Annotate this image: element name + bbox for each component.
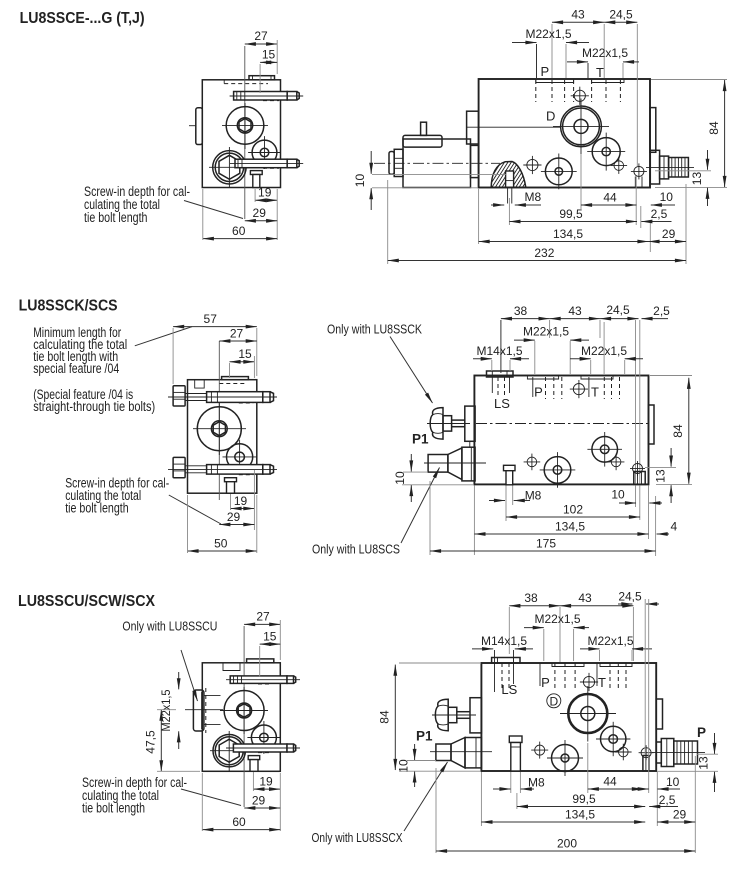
svg-text:Only with LU8SSCU: Only with LU8SSCU xyxy=(122,619,217,634)
svg-text:M22x1,5: M22x1,5 xyxy=(534,612,580,626)
svg-text:15: 15 xyxy=(238,347,252,361)
svg-text:Only with LU8SSCK: Only with LU8SSCK xyxy=(327,322,422,337)
svg-text:M22x1,5: M22x1,5 xyxy=(582,46,628,60)
svg-text:tie bolt length: tie bolt length xyxy=(82,801,145,816)
svg-text:M22x1,5: M22x1,5 xyxy=(587,634,633,648)
svg-text:10: 10 xyxy=(660,190,674,204)
svg-text:29: 29 xyxy=(662,227,676,241)
svg-text:27: 27 xyxy=(254,29,268,43)
svg-text:T: T xyxy=(598,675,606,690)
svg-text:29: 29 xyxy=(227,510,241,524)
svg-text:44: 44 xyxy=(603,191,617,205)
svg-text:50: 50 xyxy=(214,536,228,550)
svg-text:19: 19 xyxy=(259,774,273,788)
svg-text:57: 57 xyxy=(204,312,218,326)
svg-text:15: 15 xyxy=(263,629,277,643)
svg-text:13: 13 xyxy=(690,172,704,186)
svg-text:43: 43 xyxy=(578,591,592,605)
svg-text:99,5: 99,5 xyxy=(559,207,583,221)
svg-text:13: 13 xyxy=(697,756,711,770)
svg-text:2,5: 2,5 xyxy=(659,793,676,807)
svg-text:134,5: 134,5 xyxy=(565,807,595,821)
svg-text:47,5: 47,5 xyxy=(144,730,158,754)
svg-text:T: T xyxy=(596,65,604,80)
svg-text:P: P xyxy=(541,675,550,690)
svg-text:24,5: 24,5 xyxy=(606,303,630,317)
svg-text:LS: LS xyxy=(501,682,517,697)
svg-text:P: P xyxy=(541,64,550,79)
svg-text:60: 60 xyxy=(232,224,246,238)
svg-text:straight-through tie bolts): straight-through tie bolts) xyxy=(33,399,155,414)
svg-text:M14x1,5: M14x1,5 xyxy=(481,634,527,648)
svg-text:15: 15 xyxy=(262,48,276,62)
svg-text:P1: P1 xyxy=(416,729,433,744)
svg-text:43: 43 xyxy=(571,8,585,22)
svg-text:19: 19 xyxy=(258,186,272,200)
svg-text:84: 84 xyxy=(378,710,392,724)
svg-text:84: 84 xyxy=(707,121,721,135)
svg-text:175: 175 xyxy=(536,536,556,550)
svg-text:24,5: 24,5 xyxy=(618,589,642,603)
svg-text:19: 19 xyxy=(234,494,248,508)
svg-text:M8: M8 xyxy=(528,776,545,790)
svg-text:29: 29 xyxy=(252,793,266,807)
svg-text:102: 102 xyxy=(563,502,583,516)
svg-text:M22x1,5: M22x1,5 xyxy=(523,324,569,338)
svg-text:P1: P1 xyxy=(412,432,429,447)
svg-text:Only with LU8SSCX: Only with LU8SSCX xyxy=(312,830,403,845)
svg-text:M8: M8 xyxy=(525,489,542,503)
svg-text:60: 60 xyxy=(232,815,246,829)
svg-text:LU8SSCE-...G (T,J): LU8SSCE-...G (T,J) xyxy=(20,10,145,27)
svg-text:44: 44 xyxy=(603,774,617,788)
svg-text:43: 43 xyxy=(568,304,582,318)
svg-text:2,5: 2,5 xyxy=(653,304,670,318)
svg-text:29: 29 xyxy=(673,807,687,821)
svg-text:M22x1,5: M22x1,5 xyxy=(581,344,627,358)
svg-text:special feature /04: special feature /04 xyxy=(33,361,119,376)
svg-text:P: P xyxy=(534,385,543,400)
svg-text:tie bolt length: tie bolt length xyxy=(65,501,129,516)
svg-text:2,5: 2,5 xyxy=(651,207,668,221)
svg-text:38: 38 xyxy=(524,591,538,605)
svg-text:4: 4 xyxy=(671,519,678,533)
svg-text:10: 10 xyxy=(611,488,625,502)
svg-text:29: 29 xyxy=(253,206,267,220)
svg-text:84: 84 xyxy=(671,424,685,438)
svg-text:134,5: 134,5 xyxy=(553,227,583,241)
svg-text:134,5: 134,5 xyxy=(555,519,585,533)
svg-text:D: D xyxy=(546,109,555,124)
svg-text:M8: M8 xyxy=(525,190,542,204)
svg-text:M22x1,5: M22x1,5 xyxy=(525,27,571,41)
svg-text:LU8SSCU/SCW/SCX: LU8SSCU/SCW/SCX xyxy=(18,593,155,610)
svg-text:13: 13 xyxy=(654,469,668,483)
svg-text:232: 232 xyxy=(534,246,554,260)
svg-text:99,5: 99,5 xyxy=(572,792,596,806)
svg-text:10: 10 xyxy=(393,471,407,485)
svg-text:10: 10 xyxy=(353,174,367,188)
svg-text:LS: LS xyxy=(494,396,510,411)
svg-text:38: 38 xyxy=(514,304,528,318)
svg-text:LU8SSCK/SCS: LU8SSCK/SCS xyxy=(19,298,118,315)
svg-text:M14x1,5: M14x1,5 xyxy=(476,344,522,358)
svg-text:Only with LU8SCS: Only with LU8SCS xyxy=(312,542,400,557)
svg-text:tie bolt length: tie bolt length xyxy=(84,210,148,225)
svg-text:P: P xyxy=(697,725,706,740)
svg-text:10: 10 xyxy=(397,759,411,773)
svg-text:D: D xyxy=(549,694,558,708)
svg-text:10: 10 xyxy=(666,775,680,789)
svg-text:200: 200 xyxy=(557,836,577,850)
svg-text:T: T xyxy=(591,385,599,400)
svg-text:27: 27 xyxy=(230,326,244,340)
svg-text:24,5: 24,5 xyxy=(609,8,633,22)
svg-text:27: 27 xyxy=(256,610,270,624)
